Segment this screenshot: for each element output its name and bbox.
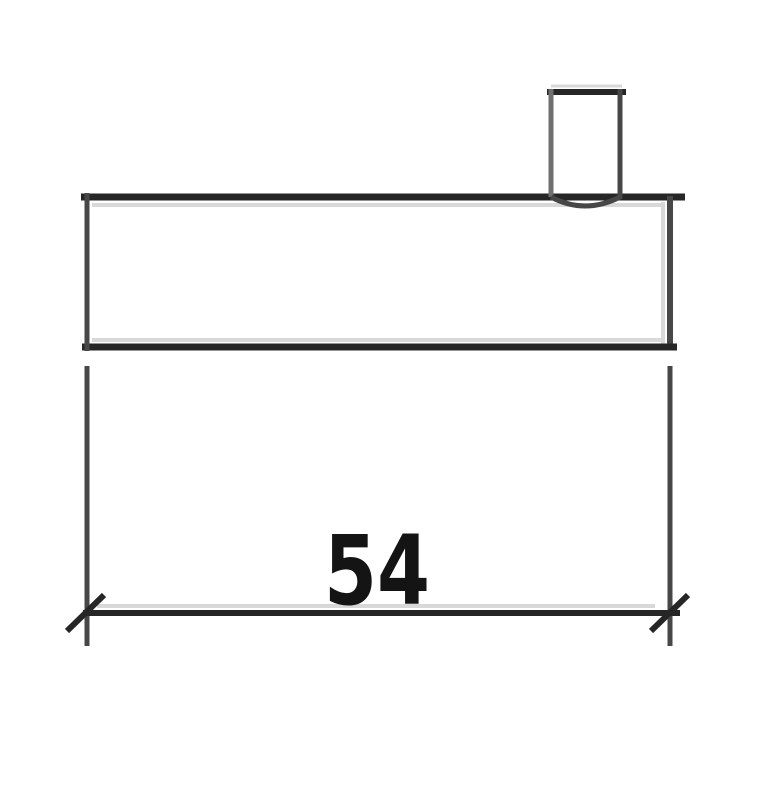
main-block-outline [81,193,685,351]
technical-drawing-canvas: 54 [0,0,776,800]
dimension-value-label: 54 [324,515,430,627]
drawing-svg: 54 [0,0,776,800]
top-tab-outline [547,89,626,206]
